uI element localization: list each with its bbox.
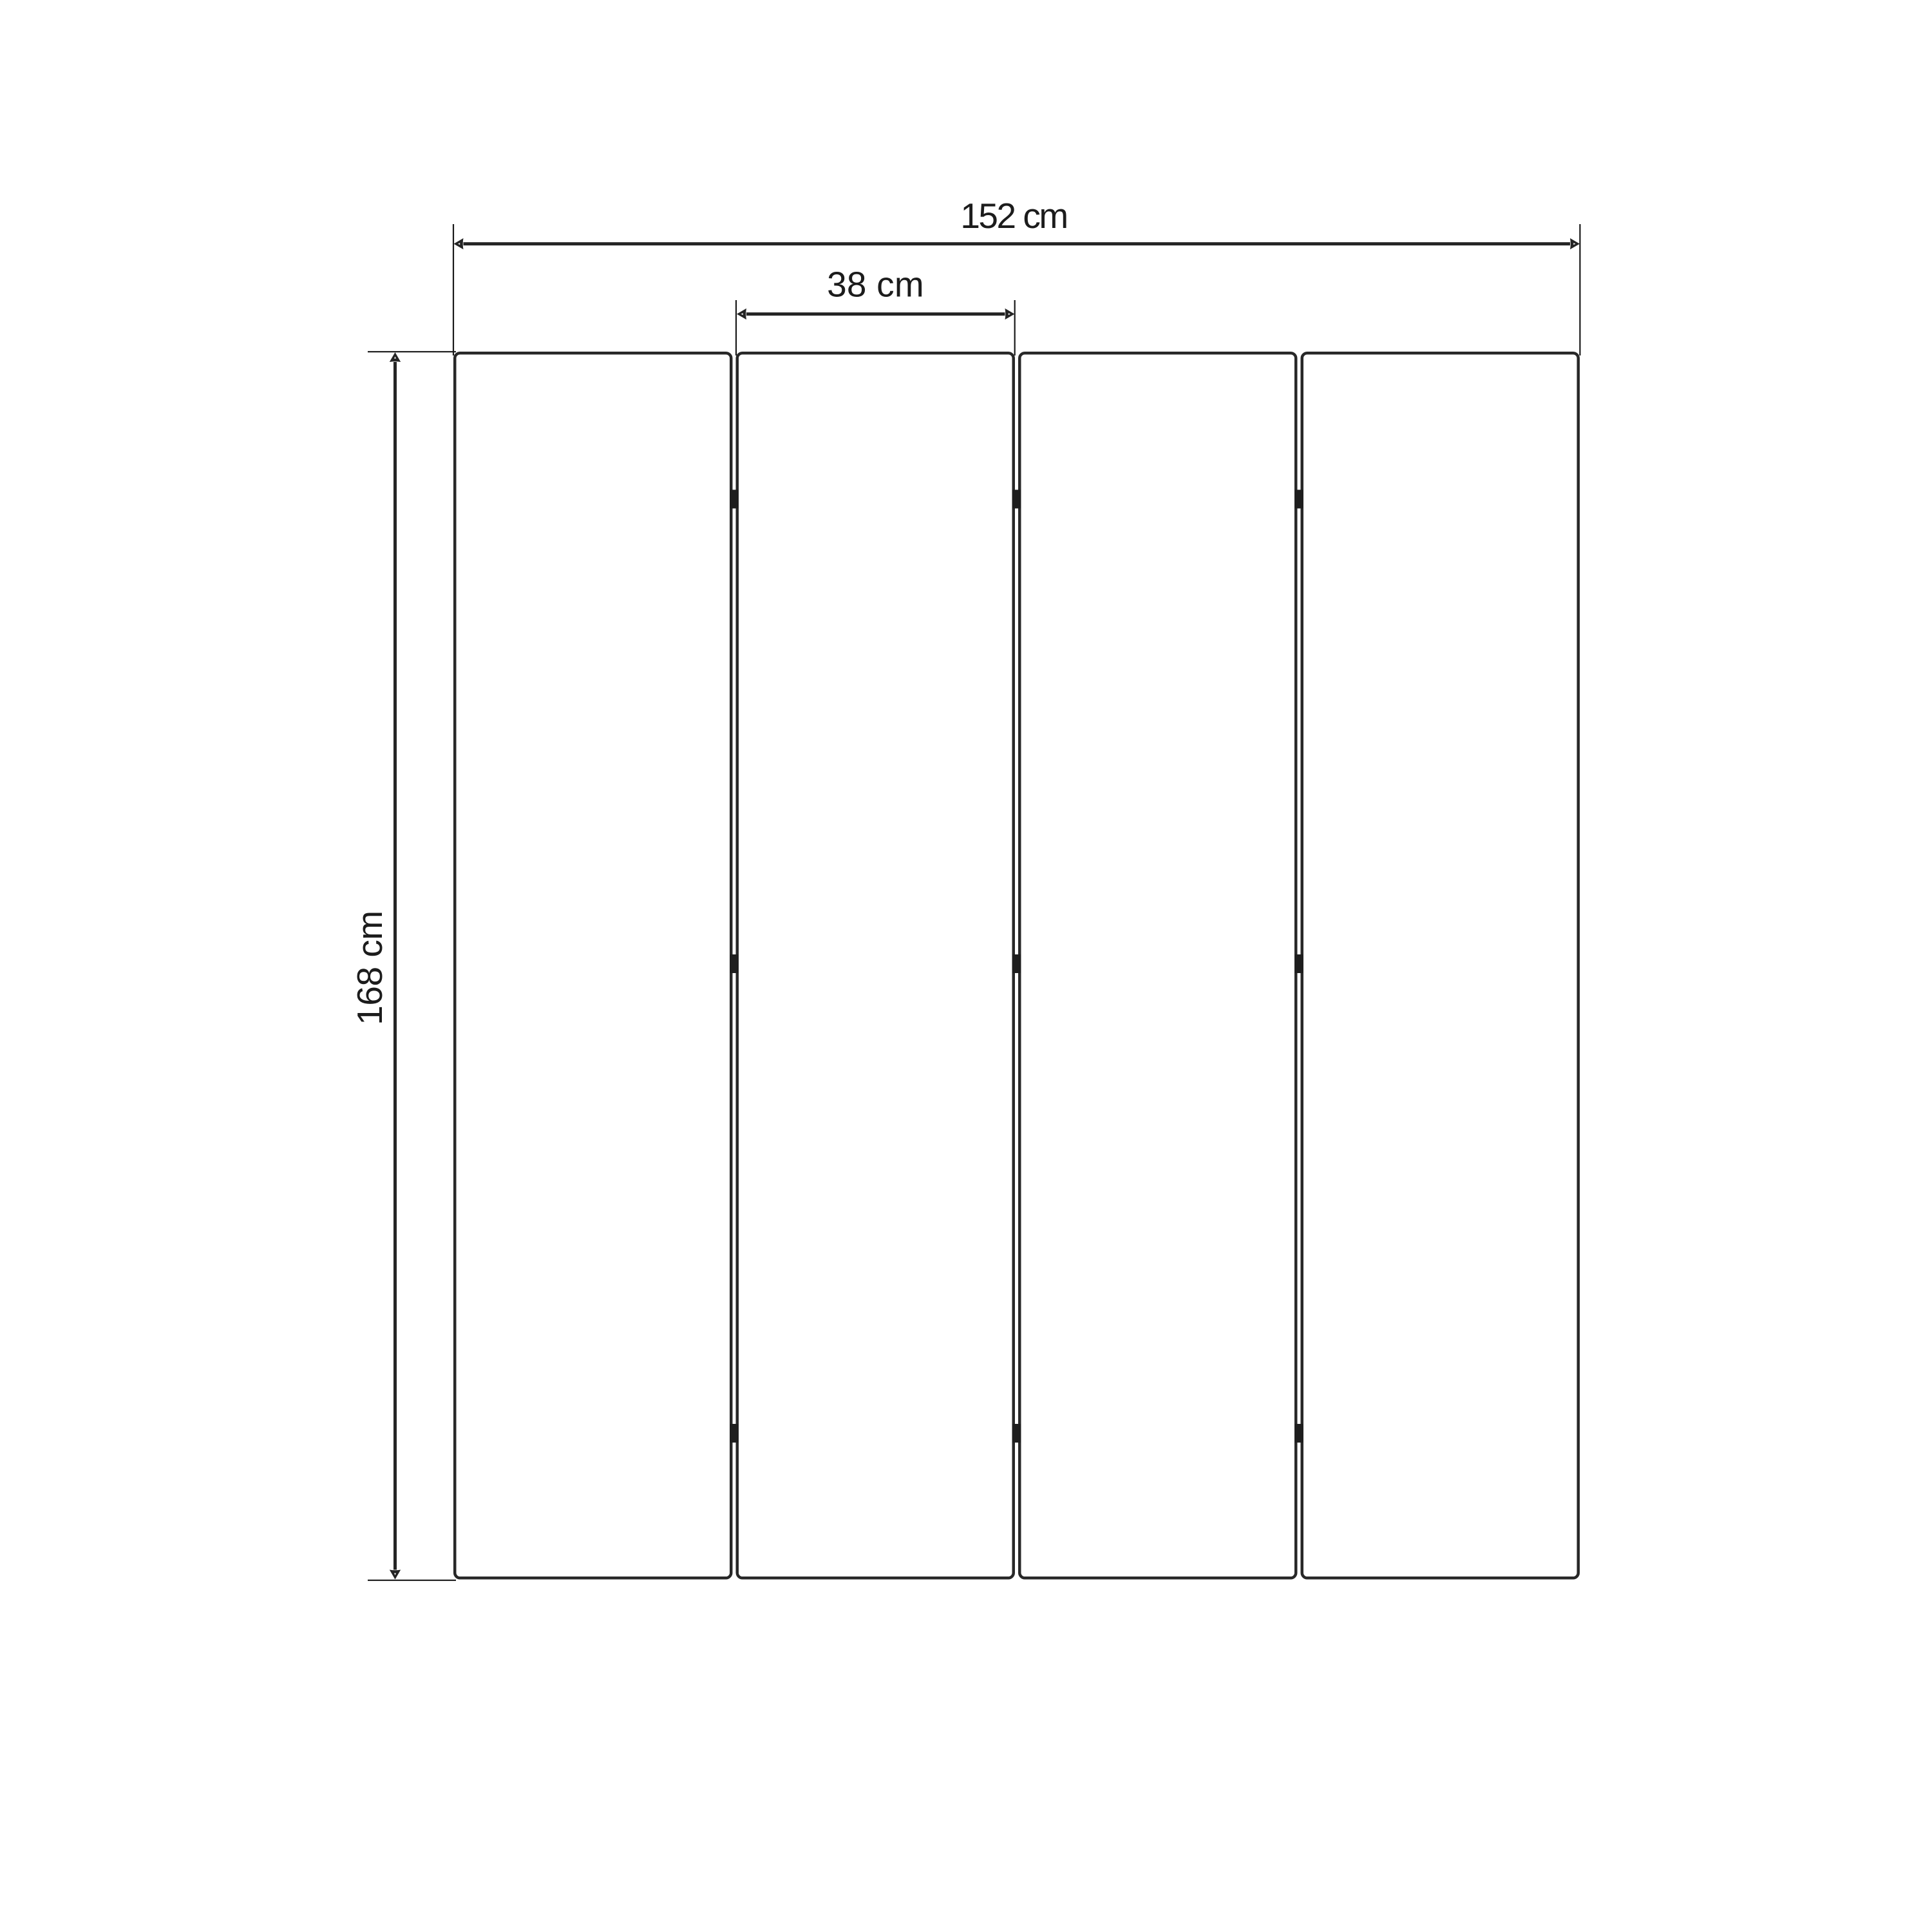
svg-text:152 cm: 152 cm [960, 196, 1066, 236]
svg-text:38 cm: 38 cm [827, 265, 924, 305]
svg-text:168 cm: 168 cm [350, 911, 390, 1025]
